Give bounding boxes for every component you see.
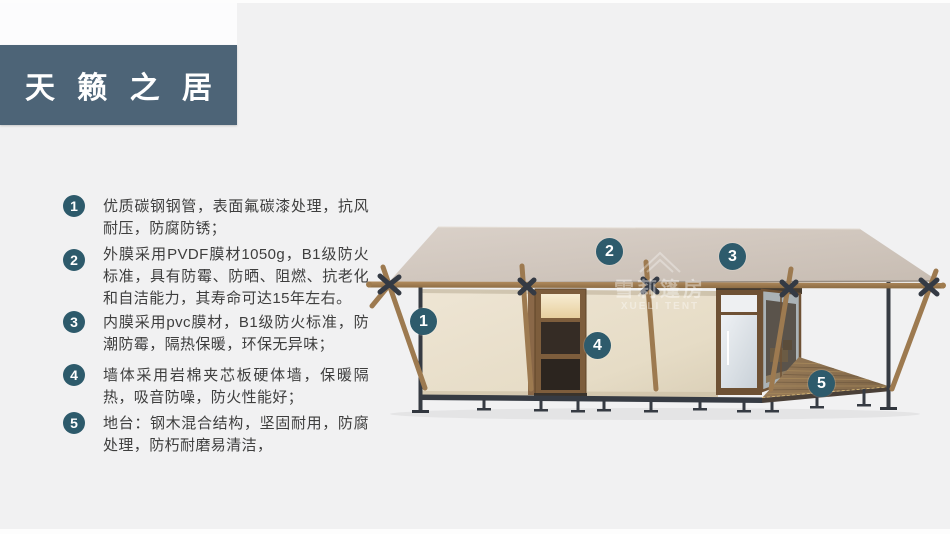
callout-3: 3 — [719, 243, 746, 270]
callout-1: 1 — [410, 308, 437, 335]
beam-end — [366, 282, 372, 288]
door-window — [541, 294, 580, 318]
callout-2: 2 — [596, 238, 623, 265]
slide: 天 籁 之 居 1 优质碳钢钢管，表面氟碳漆处理，抗风耐压，防腐防锈； 2 外膜… — [0, 0, 950, 534]
door-sill — [534, 393, 587, 396]
tent-illustration — [0, 0, 950, 534]
steel-post-left — [419, 283, 423, 411]
ground-shadow — [390, 408, 920, 420]
glass-transom — [721, 295, 757, 312]
steel-post-left-foot — [412, 410, 429, 413]
interior-furniture — [783, 340, 792, 350]
callout-5: 5 — [808, 370, 835, 397]
glass-door-panel — [721, 315, 757, 388]
steel-post-right-foot — [880, 407, 897, 410]
roof-canopy — [388, 227, 938, 283]
beam-end — [940, 283, 946, 289]
door-panel-upper — [541, 322, 580, 354]
door-panel-lower — [541, 359, 580, 390]
callout-4: 4 — [584, 332, 611, 359]
